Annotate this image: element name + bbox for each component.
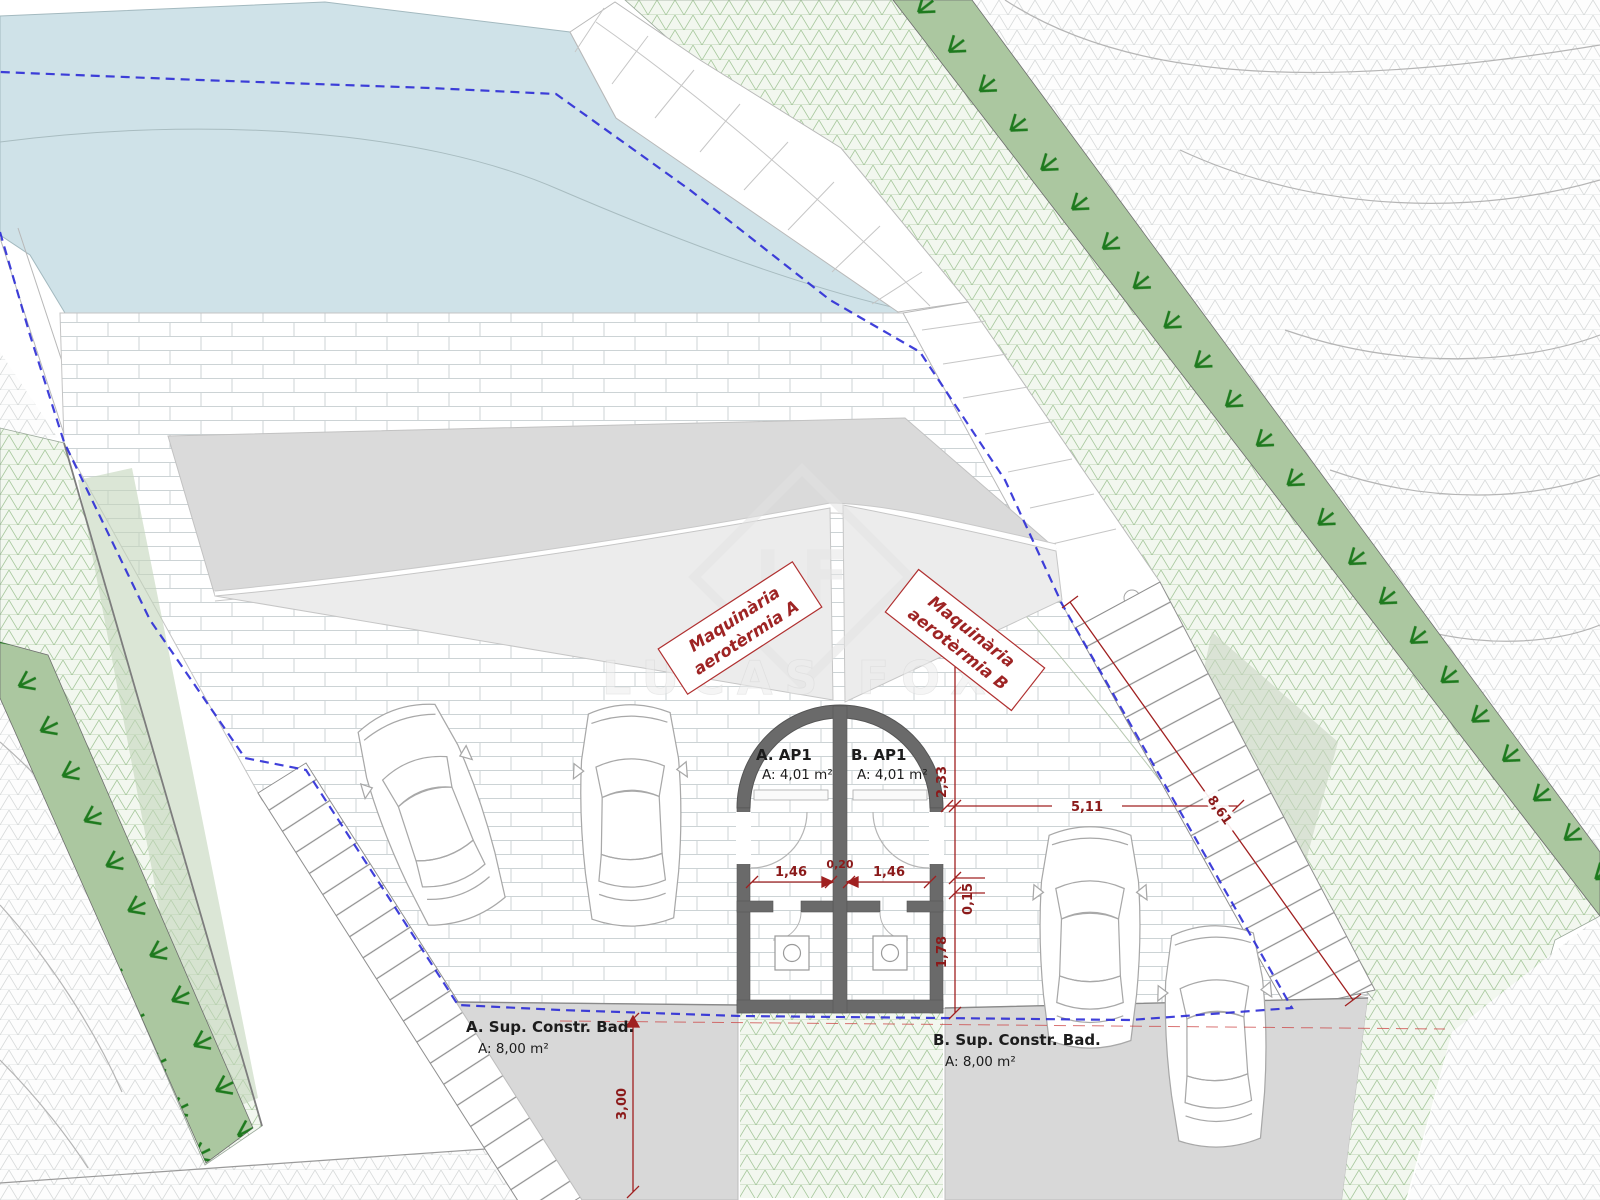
dim-label-0-20: 0,20 (826, 858, 853, 871)
surface-a-area: A: 8,00 m² (478, 1041, 549, 1057)
site-plan-page: LF LUCAS FOX (0, 0, 1600, 1200)
door-opening-b (929, 812, 944, 864)
dim-label-3-00: 3,00 (615, 1088, 630, 1120)
surface-b-title: B. Sup. Constr. Bad. (933, 1031, 1101, 1049)
counter-a (754, 790, 828, 800)
room-a-area: A: 4,01 m² (762, 767, 833, 783)
site-plan-drawing: LF LUCAS FOX (0, 0, 1600, 1200)
surface-zone-b (945, 998, 1368, 1200)
door-opening-a (736, 812, 751, 864)
room-a-name: A. AP1 (756, 746, 812, 764)
watermark-brand-text: LUCAS FOX (602, 651, 998, 705)
green-strip-below-building (740, 1012, 943, 1198)
dim-label-1-46-a: 1,46 (775, 865, 807, 880)
dim-label-0-15: 0,15 (961, 883, 976, 915)
surface-b-area: A: 8,00 m² (945, 1054, 1016, 1070)
room-b-name: B. AP1 (851, 746, 906, 764)
car-3 (1033, 827, 1147, 1048)
surface-a-title: A. Sup. Constr. Bad. (466, 1018, 634, 1036)
dim-label-1-46-b: 1,46 (873, 865, 905, 880)
counter-b (853, 790, 927, 800)
dim-label-1-78: 1,78 (935, 936, 950, 968)
dim-label-2-33: 2,33 (935, 766, 950, 798)
room-b-area: A: 4,01 m² (857, 767, 928, 783)
car-2 (572, 704, 690, 927)
dim-label-5-11: 5,11 (1071, 800, 1103, 815)
